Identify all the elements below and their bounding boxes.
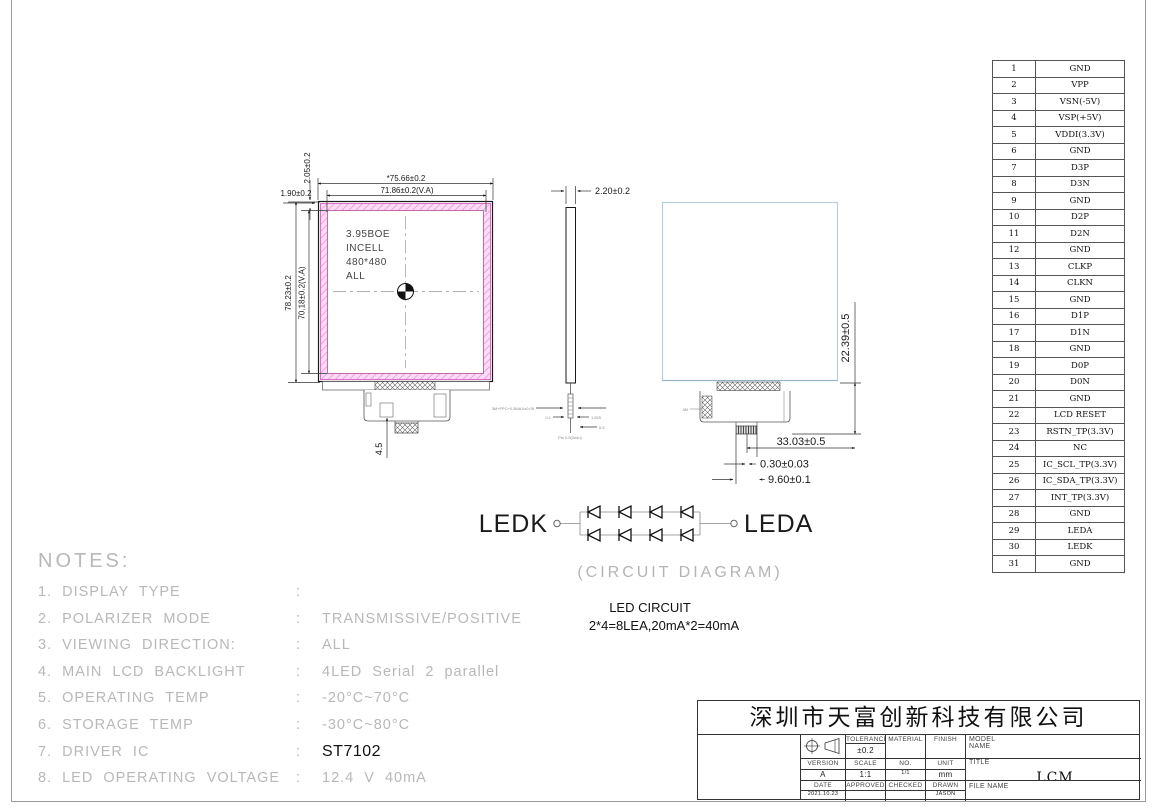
circuit-caption: (CIRCUIT DIAGRAM)	[577, 564, 782, 581]
pin-name: INT_TP(3.3V)	[1036, 490, 1125, 507]
micro-note: Pin 0.5(2min)	[558, 435, 582, 440]
pin-name: D2P	[1036, 209, 1125, 226]
ledk-label: LEDK	[479, 510, 548, 538]
note-row: 2. POLARIZER MODE:TRANSMISSIVE/POSITIVE	[38, 611, 522, 638]
pin-number: 22	[993, 407, 1036, 424]
pin-name: NC	[1036, 440, 1125, 457]
unit-label: UNIT	[926, 759, 965, 767]
pin-row: 28GND	[993, 506, 1125, 523]
note-label: 6. STORAGE TEMP	[38, 717, 296, 733]
pin-name: VSN(-5V)	[1036, 94, 1125, 111]
date-header: DATE	[801, 781, 846, 791]
rear-fpc-outline	[700, 391, 790, 422]
pin-number: 20	[993, 374, 1036, 391]
pin-number: 3	[993, 94, 1036, 111]
dim-thickness: 2.20±0.2	[595, 186, 630, 196]
note-colon: :	[296, 690, 322, 706]
pin-number: 18	[993, 341, 1036, 358]
pin-row: 11D2N	[993, 226, 1125, 243]
pin-name: D2N	[1036, 226, 1125, 243]
pin-name: LEDK	[1036, 539, 1125, 556]
pin-row: 17D1N	[993, 325, 1125, 342]
note-value: ST7102	[322, 743, 381, 761]
pin-number: 8	[993, 176, 1036, 193]
pin-name: VPP	[1036, 77, 1125, 94]
pin-name: VDDI(3.3V)	[1036, 127, 1125, 144]
pin-number: 6	[993, 143, 1036, 160]
no-value: 1/1	[886, 770, 925, 776]
note-colon: :	[296, 744, 322, 760]
rear-connector	[736, 426, 757, 434]
pin-name: D1N	[1036, 325, 1125, 342]
pin-row: 5VDDI(3.3V)	[993, 127, 1125, 144]
led-circuit-heading: LED CIRCUIT	[609, 600, 691, 615]
side-view-dimensions: 2.20±0.2 3M+FPC+0.3MAX±0.05 0.1 1.825 0.…	[492, 186, 630, 440]
pin-row: 10D2P	[993, 209, 1125, 226]
note-colon: :	[296, 637, 322, 653]
drawing-sheet: 3.95BOE INCELL 480*480 ALL *75.66±0.2 71	[0, 0, 1152, 810]
pin-name: LEDA	[1036, 523, 1125, 540]
material-cell: MATERIAL	[886, 735, 926, 759]
micro-note: 3M+FPC+0.3MAX±0.05	[492, 406, 535, 411]
pin-row: 25IC_SCL_TP(3.3V)	[993, 457, 1125, 474]
unit-value-cell: mm	[926, 770, 966, 781]
pin-row: 30LEDK	[993, 539, 1125, 556]
drawn-value-cell: JASON	[926, 791, 966, 801]
pin-number: 26	[993, 473, 1036, 490]
title-block: 深圳市天富创新科技有限公司 TOLERANCE ±0.2 MATERIAL FI…	[697, 700, 1140, 800]
pin-row: 16D1P	[993, 308, 1125, 325]
approved-value-cell	[846, 791, 886, 801]
pin-name: GND	[1036, 292, 1125, 309]
rear-fpc-stiffener	[702, 396, 712, 418]
file-name-label: FILE NAME	[969, 783, 1009, 790]
pin-number: 17	[993, 325, 1036, 342]
company-name: 深圳市天富创新科技有限公司	[698, 701, 1139, 735]
notes-list: 1. DISPLAY TYPE:2. POLARIZER MODE:TRANSM…	[38, 584, 522, 796]
leda-label: LEDA	[744, 510, 813, 538]
unit-header: UNIT	[926, 759, 966, 770]
notes-title: NOTES:	[38, 550, 522, 584]
panel-label-line: 3.95BOE	[346, 229, 390, 240]
note-label: 5. OPERATING TEMP	[38, 690, 296, 706]
pin-row: 1GND	[993, 61, 1125, 78]
micro-note: 0.5	[599, 425, 605, 430]
pin-number: 7	[993, 160, 1036, 177]
note-value: 12.4 V 40mA	[322, 770, 427, 786]
note-colon: :	[296, 584, 322, 600]
pin-number: 13	[993, 259, 1036, 276]
dim-fpc-drop: 4.5	[374, 443, 384, 456]
pin-name: CLKN	[1036, 275, 1125, 292]
no-header: NO.	[886, 759, 926, 770]
notes-section: NOTES: 1. DISPLAY TYPE:2. POLARIZER MODE…	[38, 550, 522, 796]
tolerance-cell: TOLERANCE ±0.2	[846, 735, 886, 759]
pin-name: GND	[1036, 341, 1125, 358]
note-row: 8. LED OPERATING VOLTAGE:12.4 V 40mA	[38, 770, 522, 797]
note-colon: :	[296, 664, 322, 680]
tolerance-value: ±0.2	[846, 746, 885, 755]
pin-name: GND	[1036, 242, 1125, 259]
pin-number: 25	[993, 457, 1036, 474]
version-value: A	[801, 770, 845, 779]
pin-row: 15GND	[993, 292, 1125, 309]
date-label: DATE	[801, 781, 845, 789]
finish-label: FINISH	[926, 735, 965, 743]
pin-name: GND	[1036, 61, 1125, 78]
version-value-cell: A	[801, 770, 846, 781]
pin-row: 19D0P	[993, 358, 1125, 375]
pin-row: 21GND	[993, 391, 1125, 408]
rear-outline	[663, 203, 838, 381]
pin-row: 18GND	[993, 341, 1125, 358]
note-label: 8. LED OPERATING VOLTAGE	[38, 770, 296, 786]
note-label: 7. DRIVER IC	[38, 744, 296, 760]
pin-number: 15	[993, 292, 1036, 309]
fpc-stiffener	[434, 394, 446, 417]
dim-left-ledge: 1.90±0.2	[280, 189, 312, 198]
tolerance-label: TOLERANCE	[846, 735, 885, 744]
dim-height-outer: 78.23±0.2	[284, 275, 293, 311]
pin-name: LCD RESET	[1036, 407, 1125, 424]
dim-fpc-length: 33.03±0.5	[777, 436, 826, 448]
pin-number: 30	[993, 539, 1036, 556]
pin-row: 9GND	[993, 193, 1125, 210]
panel-label-line: INCELL	[346, 243, 384, 254]
pin-name: D1P	[1036, 308, 1125, 325]
pin-name: GND	[1036, 506, 1125, 523]
pin-row: 13CLKP	[993, 259, 1125, 276]
scale-header: SCALE	[846, 759, 886, 770]
pin-number: 21	[993, 391, 1036, 408]
pin-number: 12	[993, 242, 1036, 259]
pin-row: 14CLKN	[993, 275, 1125, 292]
pin-row: 7D3P	[993, 160, 1125, 177]
pin-row: 6GND	[993, 143, 1125, 160]
drawn-value: JASON	[926, 791, 965, 797]
led-circuit-formula: 2*4=8LEA,20mA*2=40mA	[589, 618, 740, 633]
side-view	[566, 208, 576, 434]
model-name-label: MODEL NAME	[969, 736, 1003, 750]
led-circuit: LEDK LEDA (CIRCUIT DIAGRAM) LED CIRCUIT …	[479, 506, 814, 633]
pin-number: 27	[993, 490, 1036, 507]
pin-number: 16	[993, 308, 1036, 325]
fpc-stiffener	[380, 403, 393, 417]
front-view: 3.95BOE INCELL 480*480 ALL	[319, 202, 493, 434]
checked-value-cell	[886, 791, 926, 801]
checked-header: CHECKED	[886, 781, 926, 791]
note-value: 4LED Serial 2 parallel	[322, 664, 499, 680]
note-label: 4. MAIN LCD BACKLIGHT	[38, 664, 296, 680]
note-colon: :	[296, 770, 322, 786]
model-name-cell: MODEL NAME	[966, 735, 1141, 759]
dim-height-va: 70.18±0.2(V.A)	[298, 266, 307, 319]
note-row: 4. MAIN LCD BACKLIGHT:4LED Serial 2 para…	[38, 664, 522, 691]
pin-name: IC_SCL_TP(3.3V)	[1036, 457, 1125, 474]
note-value: ALL	[322, 637, 351, 653]
backlight-tape-hatch	[375, 382, 435, 391]
pin-row: 29LEDA	[993, 523, 1125, 540]
pin-number: 28	[993, 506, 1036, 523]
ledk-terminal	[554, 520, 560, 526]
note-value: -20°C~70°C	[322, 690, 410, 706]
pin-table-body: 1GND2VPP3VSN(-5V)4VSP(+5V)5VDDI(3.3V)6GN…	[993, 61, 1125, 573]
scale-label: SCALE	[846, 759, 885, 767]
note-value: TRANSMISSIVE/POSITIVE	[322, 611, 522, 627]
material-label: MATERIAL	[886, 735, 925, 743]
note-value: -30°C~80°C	[322, 717, 410, 733]
no-value-cell: 1/1	[886, 770, 926, 781]
fpc-stiffener	[366, 393, 371, 406]
pin-name: GND	[1036, 391, 1125, 408]
title-value: LCM	[969, 770, 1141, 781]
pin-table: 1GND2VPP3VSN(-5V)4VSP(+5V)5VDDI(3.3V)6GN…	[992, 60, 1125, 573]
pin-number: 2	[993, 77, 1036, 94]
pin-row: 24NC	[993, 440, 1125, 457]
approved-header: APPROVED	[846, 781, 886, 791]
drawn-header: DRAWN	[926, 781, 966, 791]
approved-label: APPROVED	[846, 781, 885, 789]
dim-width-va: 71.86±0.2(V.A)	[380, 186, 433, 195]
pin-row: 31GND	[993, 556, 1125, 573]
micro-note: 0.1	[545, 415, 551, 420]
note-row: 5. OPERATING TEMP:-20°C~70°C	[38, 690, 522, 717]
pin-row: 3VSN(-5V)	[993, 94, 1125, 111]
third-angle-projection-icon	[801, 735, 844, 757]
pin-number: 5	[993, 127, 1036, 144]
date-value-cell: 2021.10.23	[801, 791, 846, 801]
fpc-connector	[395, 423, 418, 433]
panel-label-line: ALL	[346, 271, 365, 282]
pin-number: 9	[993, 193, 1036, 210]
leda-terminal	[731, 520, 737, 526]
unit-value: mm	[926, 770, 965, 779]
pin-row: 2VPP	[993, 77, 1125, 94]
dim-top-ledge: 2.05±0.2	[303, 152, 312, 184]
note-label: 3. VIEWING DIRECTION:	[38, 637, 296, 653]
pin-name: IC_SDA_TP(3.3V)	[1036, 473, 1125, 490]
note-row: 3. VIEWING DIRECTION::ALL	[38, 637, 522, 664]
dim-fpc-height: 22.39±0.5	[840, 314, 852, 363]
pin-name: D0P	[1036, 358, 1125, 375]
pin-number: 1	[993, 61, 1036, 78]
pin-name: VSP(+5V)	[1036, 110, 1125, 127]
dim-width-outer: *75.66±0.2	[387, 174, 426, 183]
led-diodes	[588, 506, 693, 541]
pin-name: GND	[1036, 556, 1125, 573]
file-name-cell: FILE NAME	[966, 781, 1141, 801]
micro-note: 1.825	[591, 415, 602, 420]
pin-row: 20D0N	[993, 374, 1125, 391]
version-header: VERSION	[801, 759, 846, 770]
version-label: VERSION	[801, 759, 845, 767]
note-colon: :	[296, 717, 322, 733]
micro-note: 3M	[682, 407, 688, 412]
title-cell: TITLE LCM	[966, 759, 1141, 781]
panel-label-line: 480*480	[346, 257, 387, 268]
side-outline	[566, 208, 576, 384]
title-label: TITLE	[969, 759, 990, 766]
finish-cell: FINISH	[926, 735, 966, 759]
title-block-empty-cell	[698, 735, 801, 800]
pin-number: 31	[993, 556, 1036, 573]
date-value: 2021.10.23	[801, 791, 845, 797]
pin-name: D3N	[1036, 176, 1125, 193]
pin-number: 4	[993, 110, 1036, 127]
note-row: 1. DISPLAY TYPE:	[38, 584, 522, 611]
drawn-label: DRAWN	[926, 781, 965, 789]
projection-symbol-cell	[801, 735, 846, 759]
pin-name: D0N	[1036, 374, 1125, 391]
pin-name: CLKP	[1036, 259, 1125, 276]
pin-number: 24	[993, 440, 1036, 457]
pin-number: 10	[993, 209, 1036, 226]
pin-name: GND	[1036, 193, 1125, 210]
scale-value: 1:1	[846, 770, 885, 779]
pin-row: 4VSP(+5V)	[993, 110, 1125, 127]
pin-number: 14	[993, 275, 1036, 292]
pin-name: GND	[1036, 143, 1125, 160]
dim-connector-width: 9.60±0.1	[768, 474, 811, 486]
pin-row: 26IC_SDA_TP(3.3V)	[993, 473, 1125, 490]
pin-number: 19	[993, 358, 1036, 375]
note-row: 7. DRIVER IC:ST7102	[38, 743, 522, 770]
pin-number: 23	[993, 424, 1036, 441]
dim-connector-thickness: 0.30±0.03	[760, 459, 809, 471]
no-label: NO.	[886, 759, 925, 767]
pin-number: 11	[993, 226, 1036, 243]
pin-row: 8D3N	[993, 176, 1125, 193]
pin-number: 29	[993, 523, 1036, 540]
pin-row: 23RSTN_TP(3.3V)	[993, 424, 1125, 441]
pin-row: 22LCD RESET	[993, 407, 1125, 424]
note-colon: :	[296, 611, 322, 627]
pin-name: RSTN_TP(3.3V)	[1036, 424, 1125, 441]
rear-view: 3M	[663, 203, 838, 435]
note-label: 2. POLARIZER MODE	[38, 611, 296, 627]
pin-name: D3P	[1036, 160, 1125, 177]
rear-tape-hatch	[717, 382, 780, 391]
scale-value-cell: 1:1	[846, 770, 886, 781]
pin-row: 27INT_TP(3.3V)	[993, 490, 1125, 507]
checked-label: CHECKED	[886, 781, 925, 789]
note-label: 1. DISPLAY TYPE	[38, 584, 296, 600]
note-row: 6. STORAGE TEMP:-30°C~80°C	[38, 717, 522, 744]
pin-row: 12GND	[993, 242, 1125, 259]
center-mark-icon	[398, 284, 414, 300]
